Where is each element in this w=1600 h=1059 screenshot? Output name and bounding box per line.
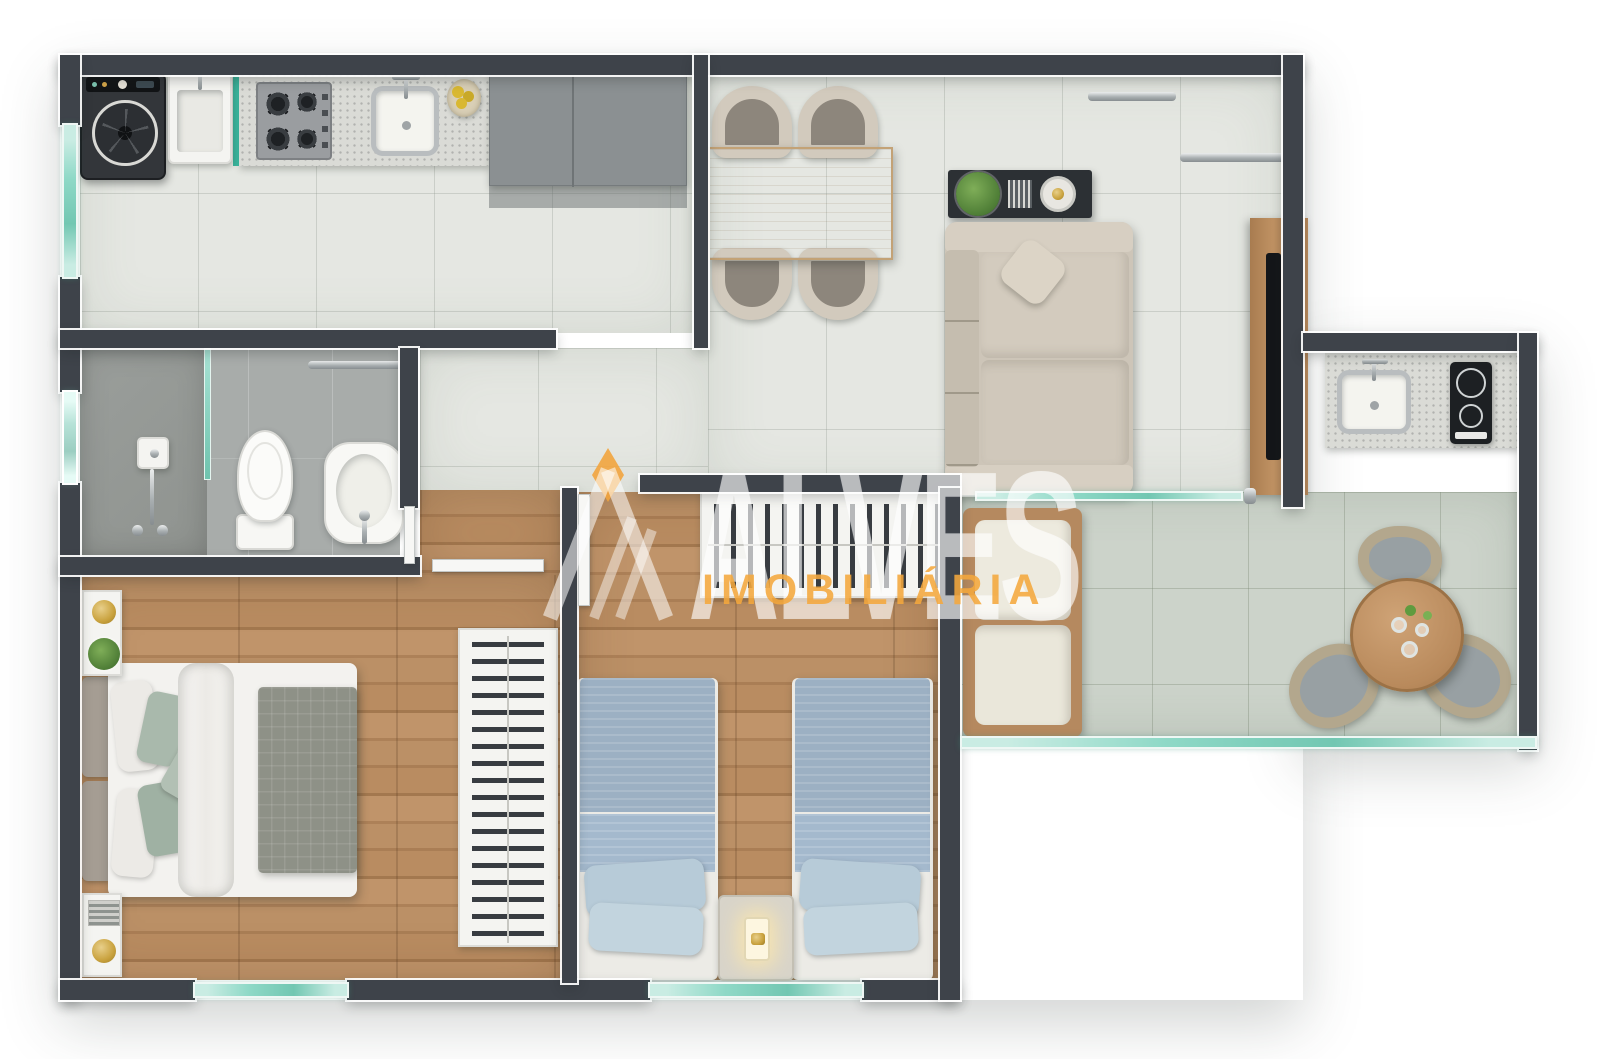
refrigerator-seam	[572, 71, 574, 187]
wardrobe-rail	[507, 636, 509, 943]
floor-plan: ALVES IMOBILIÁRIA	[0, 0, 1600, 1059]
bathroom-door	[404, 506, 415, 564]
nightstand	[82, 590, 122, 676]
table-lamp	[92, 600, 116, 624]
sink-drain	[1370, 401, 1379, 410]
plant	[88, 638, 120, 670]
washer-display	[136, 81, 154, 88]
sink-faucet-bar	[1362, 359, 1388, 364]
bed-pillow	[803, 902, 919, 956]
toilet-lid-line	[247, 442, 283, 500]
double-bed	[82, 663, 357, 897]
wardrobe-rail	[708, 544, 954, 546]
wall-bathroom-right	[400, 348, 418, 508]
lamp-base	[751, 933, 765, 945]
nightstand-lamp-glow	[744, 917, 770, 961]
wall-shelf	[1088, 92, 1176, 101]
cooktop-2-burners	[1450, 362, 1492, 444]
sink-drain	[402, 121, 411, 130]
bedroom2-nightstand	[718, 895, 794, 981]
shower-handle	[157, 525, 168, 536]
master-bedroom-window	[193, 982, 349, 998]
bedroom2-door	[578, 494, 590, 606]
bedroom2-wardrobe	[700, 490, 958, 598]
wall-bathroom-top	[60, 330, 556, 348]
balcony-glass-railing	[960, 736, 1537, 749]
bed-headboard	[82, 781, 108, 881]
circulation-floor	[420, 348, 708, 492]
round-table	[1350, 578, 1464, 692]
cooktop-burner	[1459, 404, 1483, 428]
wall-balcony-top	[1303, 333, 1537, 351]
stove-burner	[265, 91, 291, 117]
kitchen-sink	[371, 86, 439, 156]
single-bed	[792, 678, 933, 980]
laundry-tank	[168, 72, 232, 164]
sofa-seat-cushion	[981, 360, 1129, 465]
lime-fruit	[1405, 605, 1416, 616]
bed-blue-quilt	[795, 678, 930, 812]
bedroom2-window	[648, 982, 864, 998]
washer-led	[102, 82, 107, 87]
wall-bedroom2-right	[940, 488, 960, 1000]
fruit-bowl	[447, 79, 481, 117]
shower-head	[150, 449, 159, 458]
tray-gold-dish	[1052, 188, 1064, 200]
wall-left	[60, 55, 80, 125]
bench-cushion	[975, 520, 1071, 620]
laundry-faucet	[198, 74, 202, 90]
stove-burner	[296, 128, 318, 150]
bed-blue-quilt	[580, 678, 715, 812]
bed-pillow	[588, 902, 704, 956]
wall-bathroom-bottom	[60, 557, 420, 575]
stove-knobs	[322, 94, 328, 152]
sink-faucet	[1372, 361, 1376, 381]
wardrobe-hangers	[714, 504, 948, 588]
partition-door-post	[1244, 488, 1256, 504]
bathroom-window	[62, 390, 78, 485]
wall-kitchen-divider	[694, 55, 708, 348]
decor-frame	[88, 900, 120, 926]
wall-bottom	[60, 980, 195, 1000]
sofa	[945, 222, 1133, 495]
wall-balcony-right	[1519, 333, 1537, 750]
sink-faucet	[404, 77, 408, 99]
decor-tray	[1040, 176, 1076, 212]
balcony-bench	[963, 508, 1082, 737]
laundry-glass-door	[62, 123, 78, 279]
glass	[1415, 623, 1429, 637]
shower-glass-partition	[204, 348, 211, 480]
gas-stove	[256, 82, 332, 160]
bench-cushion	[975, 625, 1071, 725]
washer-drum	[92, 100, 158, 166]
single-bed	[577, 678, 718, 980]
sofa-back-cushions	[945, 250, 979, 467]
glass	[1401, 641, 1418, 658]
console-table	[948, 170, 1092, 218]
wall-bedroom2-top	[640, 475, 960, 492]
glass	[1391, 617, 1407, 633]
laundry-tank-basin	[177, 90, 223, 152]
wall-bedroom-divider	[562, 488, 577, 983]
wall-top	[60, 55, 1303, 75]
bed-gray-quilt	[258, 687, 357, 873]
shower-handle	[132, 525, 143, 536]
master-wardrobe	[458, 628, 558, 947]
bed-headboard	[82, 677, 108, 777]
washer-led	[92, 82, 97, 87]
tv	[1266, 253, 1281, 460]
living-balcony-glass-partition	[975, 491, 1243, 501]
decor-stack	[1008, 180, 1032, 208]
stove-burner	[265, 126, 291, 152]
wall-bottom	[347, 980, 650, 1000]
table-lamp	[92, 939, 116, 963]
fruit	[456, 98, 467, 109]
washer-drum-spokes	[101, 109, 149, 157]
washbasin	[324, 442, 404, 544]
toilet-bowl	[237, 430, 293, 522]
cooktop-controls	[1455, 432, 1487, 439]
cabinet-divider-glass	[233, 72, 239, 166]
dining-table	[708, 147, 893, 260]
toilet	[236, 430, 294, 550]
washer-dial	[118, 80, 127, 89]
master-bedroom-door	[432, 559, 544, 572]
wall-living-right	[1283, 55, 1303, 507]
bed-duvet-fold	[178, 663, 234, 897]
shower-pipe	[150, 469, 154, 525]
nightstand	[82, 893, 122, 977]
shower-head-plate	[137, 437, 169, 469]
lime-fruit	[1423, 611, 1432, 620]
refrigerator	[489, 70, 687, 186]
sink-faucet-bar	[392, 75, 420, 80]
washing-machine	[80, 72, 166, 180]
washer-control-panel	[86, 77, 160, 92]
plant	[956, 172, 1000, 216]
refrigerator-shadow	[489, 186, 687, 208]
stove-burner	[296, 91, 318, 113]
washbasin-faucet-head	[359, 510, 370, 521]
washbasin-faucet	[362, 518, 367, 544]
balcony-sink	[1337, 370, 1411, 434]
towel-bar	[308, 361, 412, 369]
cooktop-burner	[1456, 368, 1486, 398]
